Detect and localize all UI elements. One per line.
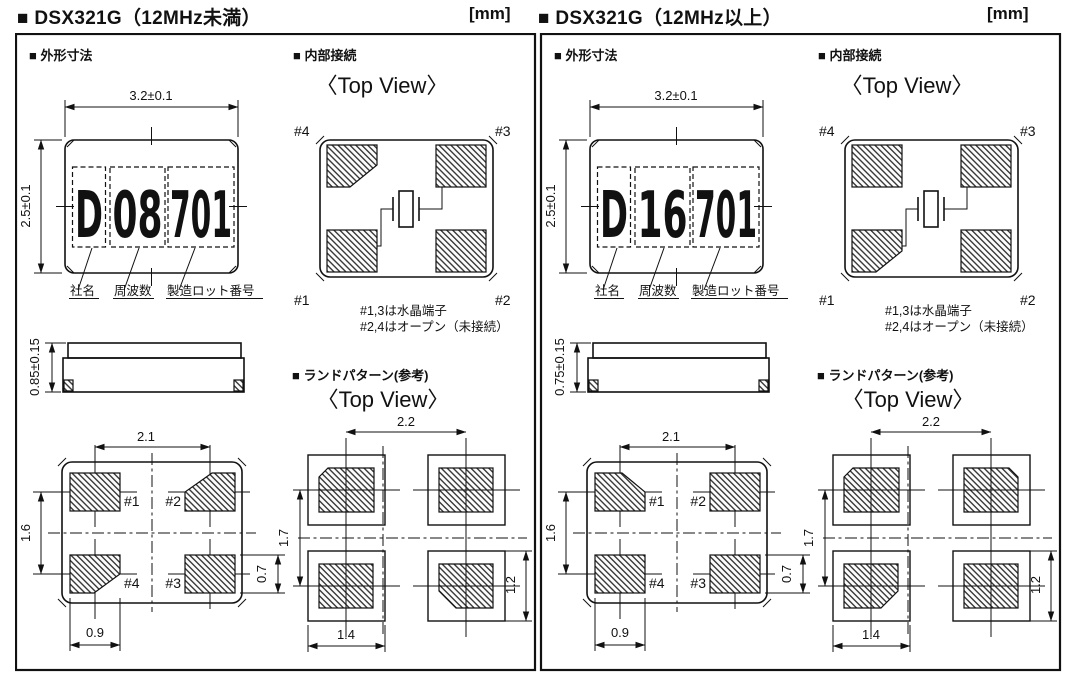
crystal-symbol <box>377 187 442 246</box>
bottom-pin-label-1: #1 <box>649 493 665 509</box>
dim-height-value: 2.5±0.1 <box>543 184 558 227</box>
dim-land-pitch-x: 2.2 <box>871 414 991 432</box>
pin-label-4: #4 <box>819 123 835 139</box>
crystal-symbol <box>902 187 967 246</box>
pin-label-3: #3 <box>495 123 511 139</box>
pin-label-1: #1 <box>294 292 310 308</box>
dim-land-pitch-y: 1.7 <box>276 490 300 586</box>
dim-bottom-pitch-x: 2.1 <box>620 429 735 447</box>
svg-text:1.4: 1.4 <box>862 627 880 642</box>
label-frequency: 周波数 <box>114 283 152 298</box>
bottom-pad-1 <box>70 473 120 511</box>
package-top-drawing: D 16 701 <box>581 127 772 286</box>
pad-2 <box>961 230 1011 272</box>
svg-text:2.1: 2.1 <box>662 429 680 444</box>
dim-land-pitch-y: 1.7 <box>801 490 825 586</box>
bottom-pin-label-2: #2 <box>165 493 181 509</box>
marking-lot-code: 701 <box>170 179 232 253</box>
label-company: 社名 <box>595 283 620 298</box>
panel-title-left: ■ DSX321G（12MHz未満） <box>17 3 261 30</box>
unit-label-right: [mm] <box>987 4 1029 24</box>
pad-4 <box>852 145 902 187</box>
svg-text:0.7: 0.7 <box>254 565 269 583</box>
bottom-pad-4 <box>70 555 120 593</box>
internal-note-2: #2,4はオープン（未接続） <box>885 319 1034 334</box>
dim-land-pad-height: 1.2 <box>1028 551 1057 621</box>
internal-note-2: #2,4はオープン（未接続） <box>360 319 509 334</box>
svg-text:1.2: 1.2 <box>503 576 518 594</box>
land-heading: ■ ランドパターン(参考) <box>817 368 953 383</box>
pad-4 <box>327 145 377 187</box>
marking-company-code: D <box>600 179 628 253</box>
internal-note-1: #1,3は水晶端子 <box>360 304 447 318</box>
internal-view-label: 〈Top View〉 <box>316 73 449 98</box>
dim-height-value: 2.5±0.1 <box>18 184 33 227</box>
svg-text:1.7: 1.7 <box>276 529 291 547</box>
pin-label-3: #3 <box>1020 123 1036 139</box>
internal-connection-section: ■ 内部接続 〈Top View〉 #4 #3 #1 #2 #1,3は水晶端子 … <box>293 48 511 334</box>
datasheet-page: ■ DSX321G（12MHz未満） [mm] ■ DSX321G（12MHz以… <box>0 0 1075 680</box>
outline-heading: ■ 外形寸法 <box>29 48 92 63</box>
land-pattern-section: ■ ランドパターン(参考) 〈Top View〉 2.2 1.7 <box>801 368 1057 652</box>
bottom-pad-2 <box>710 473 760 511</box>
label-company: 社名 <box>70 283 95 298</box>
side-view: 0.75±0.15 <box>552 338 769 396</box>
dim-side-height-value: 0.85±0.15 <box>27 338 42 396</box>
dim-width-value: 3.2±0.1 <box>129 88 172 103</box>
pad-3 <box>961 145 1011 187</box>
dim-package-height: 2.5±0.1 <box>543 140 587 273</box>
svg-text:2.2: 2.2 <box>922 414 940 429</box>
land-pattern-section: ■ ランドパターン(参考) 〈Top View〉 2.2 1.7 <box>276 368 532 652</box>
panel-title-right: ■ DSX321G（12MHz以上） <box>538 3 782 30</box>
svg-text:1.6: 1.6 <box>18 524 33 542</box>
land-view-label: 〈Top View〉 <box>317 387 450 412</box>
svg-text:1.4: 1.4 <box>337 627 355 642</box>
dim-bottom-pitch-y: 1.6 <box>18 492 41 574</box>
marking-company-code: D <box>75 179 103 253</box>
dim-package-height: 2.5±0.1 <box>18 140 62 273</box>
bottom-pad-3 <box>185 555 235 593</box>
outline-section: ■ 外形寸法 3.2±0.1 2.5±0.1 D 08 <box>18 48 263 299</box>
land-heading: ■ ランドパターン(参考) <box>292 368 428 383</box>
pad-1 <box>852 230 902 272</box>
land-view-label: 〈Top View〉 <box>842 387 975 412</box>
bottom-pin-label-3: #3 <box>690 575 706 591</box>
package-top-drawing: D 08 701 <box>56 127 247 286</box>
dim-land-pitch-x: 2.2 <box>346 414 466 432</box>
bottom-pad-1 <box>595 473 645 511</box>
pin-label-1: #1 <box>819 292 835 308</box>
label-lot: 製造ロット番号 <box>692 284 780 298</box>
dim-bottom-pitch-x: 2.1 <box>95 429 210 447</box>
bottom-pin-label-3: #3 <box>165 575 181 591</box>
svg-text:2.2: 2.2 <box>397 414 415 429</box>
panel-under-12mhz: ■ 外形寸法 3.2±0.1 2.5±0.1 D 08 <box>15 33 537 672</box>
dim-width-value: 3.2±0.1 <box>654 88 697 103</box>
dim-bottom-pitch-y: 1.6 <box>543 492 566 574</box>
dim-land-pad-height: 1.2 <box>503 551 532 621</box>
dim-land-pad-width: 1.4 <box>833 625 910 652</box>
internal-connection-section: ■ 内部接続 〈Top View〉 #4 #3 #1 #2 #1,3は水晶端子 … <box>818 48 1036 334</box>
svg-text:2.1: 2.1 <box>137 429 155 444</box>
dim-land-pad-width: 1.4 <box>308 625 385 652</box>
bottom-pin-label-2: #2 <box>690 493 706 509</box>
unit-label-left: [mm] <box>469 4 511 24</box>
svg-text:0.9: 0.9 <box>611 625 629 640</box>
svg-text:0.7: 0.7 <box>779 565 794 583</box>
side-view: 0.85±0.15 <box>27 338 244 396</box>
internal-heading: ■ 内部接続 <box>293 48 356 63</box>
pad-2 <box>436 230 486 272</box>
dim-side-height-value: 0.75±0.15 <box>552 338 567 396</box>
bottom-pad-2 <box>185 473 235 511</box>
marking-frequency-code: 08 <box>113 179 163 253</box>
svg-text:1.2: 1.2 <box>1028 576 1043 594</box>
pad-3 <box>436 145 486 187</box>
outline-section: ■ 外形寸法 3.2±0.1 2.5±0.1 D 16 <box>543 48 788 299</box>
svg-text:1.7: 1.7 <box>801 529 816 547</box>
bottom-view: #1 #2 #4 #3 2.1 1.6 0.9 0.7 <box>543 429 810 651</box>
bottom-pin-label-4: #4 <box>124 575 140 591</box>
bottom-pin-label-1: #1 <box>124 493 140 509</box>
svg-text:0.9: 0.9 <box>86 625 104 640</box>
marking-frequency-code: 16 <box>638 179 688 253</box>
bottom-pin-label-4: #4 <box>649 575 665 591</box>
label-lot: 製造ロット番号 <box>167 284 255 298</box>
internal-heading: ■ 内部接続 <box>818 48 881 63</box>
outline-heading: ■ 外形寸法 <box>554 48 617 63</box>
bottom-view: #1 #2 #4 #3 2.1 1.6 0.9 0.7 <box>18 429 285 651</box>
bottom-pad-4 <box>595 555 645 593</box>
pin-label-4: #4 <box>294 123 310 139</box>
panel-over-12mhz: ■ 外形寸法 3.2±0.1 2.5±0.1 D 16 <box>539 33 1063 672</box>
svg-text:1.6: 1.6 <box>543 524 558 542</box>
bottom-pad-3 <box>710 555 760 593</box>
internal-note-1: #1,3は水晶端子 <box>885 304 972 318</box>
marking-lot-code: 701 <box>695 179 757 253</box>
pin-label-2: #2 <box>1020 292 1036 308</box>
pad-1 <box>327 230 377 272</box>
internal-view-label: 〈Top View〉 <box>841 73 974 98</box>
pin-label-2: #2 <box>495 292 511 308</box>
label-frequency: 周波数 <box>639 283 677 298</box>
